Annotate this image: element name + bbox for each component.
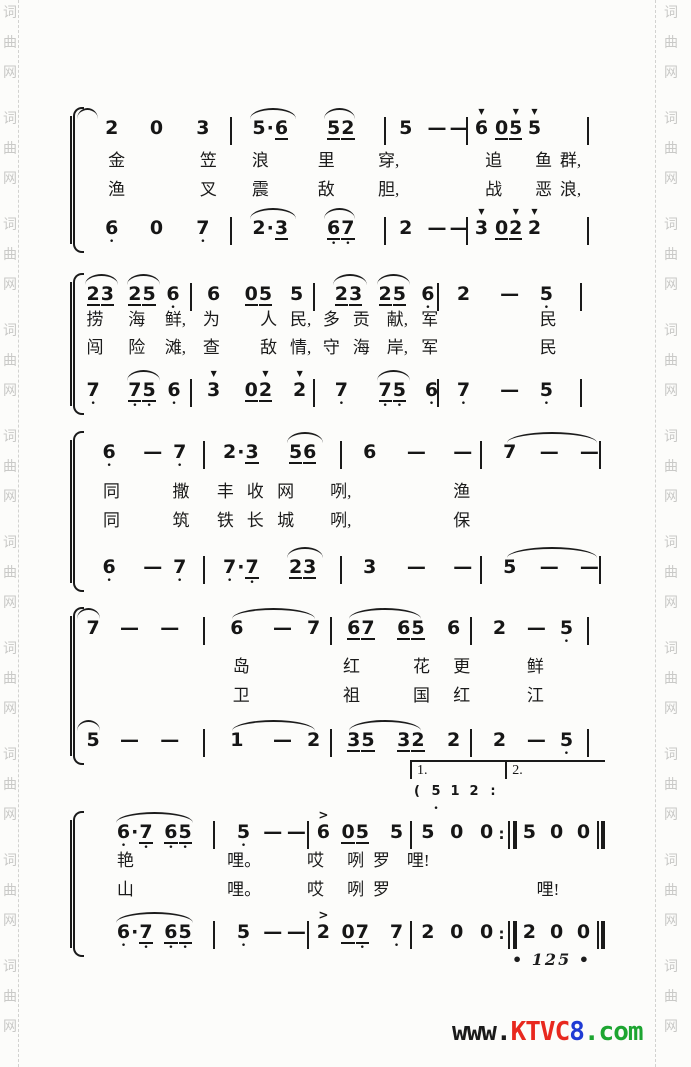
barline xyxy=(437,379,439,407)
octave-dot: • xyxy=(331,242,336,248)
note-group: ▼5 xyxy=(528,106,541,138)
note-group: — xyxy=(527,606,546,638)
music-system: 1.2.(5•12:6•·7•6•5•5•——>6055500:500艳哩。哎咧… xyxy=(85,760,600,956)
lyric-syllable: 岛 xyxy=(233,656,250,678)
note-group: >6 xyxy=(317,810,330,842)
lyrics-row: 渔叉震敌胆,战恶浪, xyxy=(85,179,600,203)
note-group: 5 xyxy=(399,106,412,138)
barline xyxy=(330,729,332,757)
lyrics-row: 艳哩。哎咧罗哩! xyxy=(85,850,600,874)
lyric-syllable: 查 xyxy=(203,337,220,359)
lyric-syllable: 丰 xyxy=(217,481,234,503)
lyric-syllable: 震 xyxy=(252,179,269,201)
watermark-char: 词 xyxy=(664,430,678,446)
dash-note: — xyxy=(263,810,282,842)
lyric-syllable: 贡 xyxy=(353,309,370,331)
note-group: 6•7• xyxy=(327,206,354,248)
cue-notes: (5•12: xyxy=(412,785,498,813)
note: 3 xyxy=(245,430,258,464)
note: 5 xyxy=(356,810,369,844)
dash-note: — xyxy=(160,718,179,750)
watermark-char: 曲 xyxy=(3,354,17,370)
barline xyxy=(599,441,601,469)
watermark-char: 网 xyxy=(664,702,678,718)
note: 5 xyxy=(87,718,100,750)
lyric-syllable: 险 xyxy=(128,337,145,359)
dash-note: — xyxy=(287,910,306,942)
note: 5 xyxy=(289,430,302,464)
barline xyxy=(587,217,589,245)
note: 2 xyxy=(411,718,424,752)
barline xyxy=(580,283,582,311)
rest-note: 0 xyxy=(495,206,508,240)
barline xyxy=(230,217,232,245)
lyric-syllable: 花 xyxy=(413,656,430,678)
octave-dot: • xyxy=(146,404,151,410)
note: ( xyxy=(412,785,422,805)
note: 7• xyxy=(341,206,354,248)
lyric-syllable: 卫 xyxy=(233,685,250,707)
note: 5 xyxy=(327,106,340,140)
lyric-syllable: 罗 xyxy=(373,879,390,901)
octave-dot: • xyxy=(249,581,254,587)
watermark-char: 网 xyxy=(664,490,678,506)
watermark-char: 网 xyxy=(3,914,17,930)
note-group: 7• xyxy=(457,368,470,408)
lyric-syllable: 笠 xyxy=(200,150,217,172)
note-group: 5• xyxy=(540,368,553,408)
lyric-syllable: 情, xyxy=(290,337,311,359)
note-group: — xyxy=(500,368,519,400)
note: 5 xyxy=(259,272,272,306)
lyric-syllable: 群, xyxy=(560,150,581,172)
rest-note: 0 xyxy=(480,810,493,842)
watermark-char: 网 xyxy=(664,808,678,824)
lyric-syllable: 江 xyxy=(527,685,544,707)
note-group: — xyxy=(120,606,139,638)
lyric-syllable: 咧 xyxy=(347,879,364,901)
lyrics-row: 同撒丰收网咧,渔 xyxy=(85,481,600,505)
watermark-column-right: 词曲网词曲网词曲网词曲网词曲网词曲网词曲网词曲网词曲网词曲网 xyxy=(664,0,682,1067)
note-group: 0 xyxy=(480,810,493,842)
note-group: 0 xyxy=(150,106,163,138)
note: 7 xyxy=(307,606,320,638)
final-barline xyxy=(597,821,606,849)
watermark-char: 曲 xyxy=(3,248,17,264)
voice-row: 6•—7•2·3566——7—— xyxy=(85,430,600,474)
note: 6• xyxy=(164,810,177,852)
accent-mark: ▼ xyxy=(478,207,484,216)
barline xyxy=(384,117,386,145)
note: 5 xyxy=(503,545,516,577)
watermark-char: 网 xyxy=(3,702,17,718)
barline xyxy=(230,117,232,145)
note-group: 5 xyxy=(421,810,434,842)
watermark-char: 网 xyxy=(664,66,678,82)
note-group: 05 xyxy=(245,272,272,306)
lyric-syllable: 鲜, xyxy=(165,309,186,331)
barline xyxy=(307,921,309,949)
lyric-syllable: 浪, xyxy=(560,179,581,201)
note-group: 32 xyxy=(397,718,424,752)
note: 5 xyxy=(399,106,412,138)
note-group: — xyxy=(540,545,559,577)
accent-mark: ▼ xyxy=(297,369,303,378)
note-group: — xyxy=(580,545,599,577)
barline xyxy=(203,441,205,469)
dot-note: · xyxy=(267,206,274,238)
barline xyxy=(410,921,412,949)
note: 6• xyxy=(327,206,340,248)
note-group: 6 xyxy=(363,430,376,462)
note: 3 xyxy=(363,545,376,577)
note-group: 0▼5 xyxy=(495,106,522,140)
note-group: 7 xyxy=(503,430,516,462)
octave-dot: • xyxy=(106,579,111,585)
note: 5• xyxy=(237,910,250,950)
watermark-char: 曲 xyxy=(3,460,17,476)
note-group: 6• xyxy=(103,545,116,585)
note: 5• xyxy=(142,368,155,410)
note: 6 xyxy=(207,272,220,304)
rest-note: 0 xyxy=(550,810,563,842)
note-group: 7• xyxy=(87,368,100,408)
lyric-syllable: 红 xyxy=(343,656,360,678)
note-group: 6•·7• xyxy=(117,910,153,952)
watermark-char: 词 xyxy=(3,218,17,234)
note: 5 xyxy=(142,272,155,306)
note: 2 xyxy=(447,718,460,750)
dash-note: — xyxy=(500,272,519,304)
note: 2 xyxy=(223,430,236,462)
lyric-syllable: 撒 xyxy=(173,481,190,503)
lyric-syllable: 穿, xyxy=(378,150,399,172)
octave-dot: • xyxy=(544,402,549,408)
accent-mark: ▼ xyxy=(513,207,519,216)
rest-note: 0 xyxy=(150,106,163,138)
watermark-char: 网 xyxy=(664,596,678,612)
lyric-syllable: 敌 xyxy=(318,179,335,201)
note: 5 xyxy=(252,106,265,138)
note-group: 7• xyxy=(196,206,209,246)
repeat-dots: : xyxy=(499,821,505,849)
barline xyxy=(213,921,215,949)
lyric-syllable: 闯 xyxy=(87,337,104,359)
barline xyxy=(470,729,472,757)
note-group: — xyxy=(500,272,519,304)
lyric-syllable: 民 xyxy=(540,309,557,331)
note: 3 xyxy=(101,272,114,306)
lyric-syllable: 哩。 xyxy=(227,850,261,872)
note: 3 xyxy=(303,545,316,579)
barline xyxy=(340,441,342,469)
barline xyxy=(599,556,601,584)
note-group: ▼3 xyxy=(207,368,220,400)
note: ▼2 xyxy=(509,206,522,240)
rest-note: 0 xyxy=(480,910,493,942)
note-group: 0 xyxy=(550,910,563,942)
lyric-syllable: 长 xyxy=(247,510,264,532)
watermark-char: 曲 xyxy=(664,354,678,370)
note-group: 0 xyxy=(450,910,463,942)
lyric-syllable: 岸, xyxy=(387,337,408,359)
barline xyxy=(330,617,332,645)
rest-note: 0 xyxy=(495,106,508,140)
barline xyxy=(190,379,192,407)
watermark-char: 曲 xyxy=(664,672,678,688)
dash-note: — xyxy=(427,106,446,138)
note: 1 xyxy=(450,785,460,805)
lyric-syllable: 金 xyxy=(108,150,125,172)
note: ▼5 xyxy=(528,106,541,138)
note-group: — xyxy=(273,718,292,750)
watermark-char: 网 xyxy=(664,914,678,930)
lyric-syllable: 网 xyxy=(277,481,294,503)
note: ▼6 xyxy=(475,106,488,138)
octave-dot: • xyxy=(200,240,205,246)
barline xyxy=(470,617,472,645)
octave-dot: • xyxy=(121,944,126,950)
lyric-syllable: 国 xyxy=(413,685,430,707)
note-group: 2 xyxy=(493,718,506,750)
dash-note: — xyxy=(540,545,559,577)
watermark-char: 词 xyxy=(664,218,678,234)
dot-note: · xyxy=(237,430,244,462)
rest-note: 0 xyxy=(150,206,163,238)
repeat-dots: : xyxy=(499,921,505,949)
note-group: 25 xyxy=(128,272,155,306)
note: 7• xyxy=(128,368,141,410)
watermark-char: 网 xyxy=(664,1020,678,1036)
note-group: — xyxy=(540,430,559,462)
watermark-char: 曲 xyxy=(3,672,17,688)
note-group: 2 xyxy=(307,718,320,750)
note-group: 7• xyxy=(173,545,186,585)
note-group: 2 xyxy=(523,910,536,942)
lyric-syllable: 追 xyxy=(485,150,502,172)
accent-mark: ▼ xyxy=(211,369,217,378)
note-group: 5• xyxy=(540,272,553,312)
note-group: 0 xyxy=(480,910,493,942)
octave-dot: • xyxy=(429,402,434,408)
watermark-char: 曲 xyxy=(3,990,17,1006)
octave-dot: • xyxy=(394,944,399,950)
watermark-char: 网 xyxy=(664,172,678,188)
note: 7• xyxy=(335,368,348,408)
barline xyxy=(340,556,342,584)
site-watermark-ktvc: KTVC xyxy=(511,1017,570,1047)
note: 7• xyxy=(139,910,152,952)
lyrics-row: 卫祖国红江 xyxy=(85,685,600,709)
barline xyxy=(480,556,482,584)
note: 7• xyxy=(196,206,209,246)
note: 5• xyxy=(560,606,573,646)
watermark-char: 词 xyxy=(3,6,17,22)
note-group: >2 xyxy=(317,910,330,942)
note: 3 xyxy=(397,718,410,752)
accent-mark: ▼ xyxy=(262,369,268,378)
dash-note: — xyxy=(273,606,292,638)
lyrics-row: 岛红花更鲜 xyxy=(85,656,600,680)
accent-mark: ▼ xyxy=(513,107,519,116)
lyric-syllable: 保 xyxy=(453,510,470,532)
note-group: — xyxy=(580,430,599,462)
note-group: 2 xyxy=(493,606,506,638)
watermark-char: 网 xyxy=(3,808,17,824)
note-group: — xyxy=(427,106,446,138)
lyric-syllable: 祖 xyxy=(343,685,360,707)
octave-dot: • xyxy=(397,404,402,410)
note: 2 xyxy=(421,910,434,942)
dash-note: — xyxy=(580,430,599,462)
music-system: 6•—7•2·3566——7——同撒丰收网咧,渔同筑铁长城咧,保6•—7•7•·… xyxy=(85,430,600,590)
dash-note: — xyxy=(143,545,162,577)
note-group: 2·3 xyxy=(252,206,288,240)
lyric-syllable: 鲜 xyxy=(527,656,544,678)
note-group: 6•·7• xyxy=(117,810,153,852)
rest-note: 0 xyxy=(550,910,563,942)
accent-mark: > xyxy=(318,908,328,922)
barline xyxy=(410,821,412,849)
barline xyxy=(190,283,192,311)
note-group: 6•5• xyxy=(164,910,191,952)
octave-dot: • xyxy=(564,752,569,758)
note-group: 2·3 xyxy=(223,430,259,464)
rest-note: 0 xyxy=(245,368,258,402)
note-group: 7 xyxy=(87,606,100,638)
octave-dot: • xyxy=(177,464,182,470)
note: ▼2 xyxy=(293,368,306,400)
page-number: • 125 • xyxy=(512,950,591,969)
note-group: — xyxy=(453,430,472,462)
note-group: 23 xyxy=(335,272,362,306)
octave-dot: • xyxy=(345,242,350,248)
watermark-char: 网 xyxy=(3,596,17,612)
rest-note: 0 xyxy=(577,810,590,842)
note-group: 2 xyxy=(457,272,470,304)
note-group: 5• xyxy=(560,606,573,646)
note: 6• xyxy=(164,910,177,952)
voice-row: 6•—7•7•·7•233——5—— xyxy=(85,545,600,589)
note-group: 23 xyxy=(87,272,114,306)
note: 2 xyxy=(252,206,265,238)
repeat-barline: : xyxy=(499,821,517,849)
watermark-char: 曲 xyxy=(3,566,17,582)
note: 6• xyxy=(105,206,118,246)
watermark-char: 网 xyxy=(3,278,17,294)
note: 2 xyxy=(87,272,100,306)
octave-dot: • xyxy=(461,402,466,408)
note: 6 xyxy=(447,606,460,638)
note-group: 6• xyxy=(167,368,180,408)
note-group: ▼2 xyxy=(528,206,541,238)
dash-note: — xyxy=(287,810,306,842)
dot-note: · xyxy=(131,810,138,842)
note-group: 3 xyxy=(363,545,376,577)
note-group: ▼3 xyxy=(475,206,488,238)
barline xyxy=(313,283,315,311)
watermark-char: 词 xyxy=(3,854,17,870)
barline xyxy=(466,117,468,145)
watermark-char: 词 xyxy=(664,536,678,552)
barline xyxy=(587,117,589,145)
lyric-syllable: 哩! xyxy=(407,850,430,872)
note-group: — xyxy=(263,910,282,942)
system-brace xyxy=(70,440,79,583)
site-watermark-www: www. xyxy=(452,1017,511,1047)
dot-note: · xyxy=(131,910,138,942)
system-brace xyxy=(70,116,79,244)
note: 2 xyxy=(341,106,354,140)
octave-dot: • xyxy=(241,944,246,950)
note: 5• xyxy=(393,368,406,410)
note: 6 xyxy=(363,430,376,462)
rest-note: 0 xyxy=(450,910,463,942)
note: 7• xyxy=(87,368,100,408)
octave-dot: • xyxy=(132,404,137,410)
watermark-column-left: 词曲网词曲网词曲网词曲网词曲网词曲网词曲网词曲网词曲网词曲网 xyxy=(3,0,21,1067)
lyric-syllable: 军 xyxy=(421,337,438,359)
score: 2035·6525——▼60▼5▼5金笠浪里穿,追鱼群,渔叉震敌胆,战恶浪,6•… xyxy=(85,0,600,1010)
dash-note: — xyxy=(500,368,519,400)
note-group: 5 xyxy=(390,810,403,842)
lyric-syllable: 胆, xyxy=(378,179,399,201)
lyric-syllable: 艳 xyxy=(117,850,134,872)
lyric-syllable: 海 xyxy=(353,337,370,359)
note-group: — xyxy=(143,430,162,462)
note: 5 xyxy=(411,606,424,640)
accent-mark: ▼ xyxy=(531,107,537,116)
note-group: 5• xyxy=(237,910,250,950)
watermark-char: 网 xyxy=(3,384,17,400)
lyric-syllable: 哩。 xyxy=(227,879,261,901)
watermark-char: 词 xyxy=(3,642,17,658)
note: 7• xyxy=(173,545,186,585)
dash-note: — xyxy=(120,718,139,750)
lyrics-row: 山哩。哎咧罗哩! xyxy=(85,879,600,903)
watermark-char: 曲 xyxy=(3,36,17,52)
octave-dot: • xyxy=(564,640,569,646)
note: 5• xyxy=(179,910,192,952)
note-group: 7•5• xyxy=(379,368,406,410)
note-group: — xyxy=(287,910,306,942)
lyrics-row: 金笠浪里穿,追鱼群, xyxy=(85,150,600,174)
watermark-char: 曲 xyxy=(3,142,17,158)
lyric-syllable: 渔 xyxy=(453,481,470,503)
note-group: 7•·7• xyxy=(223,545,259,587)
note-group: 0 xyxy=(450,810,463,842)
note: 6• xyxy=(167,368,180,408)
barline xyxy=(213,821,215,849)
note: 6• xyxy=(166,272,179,312)
note-group: 65 xyxy=(397,606,424,640)
note: 5 xyxy=(290,272,303,304)
lyric-syllable: 哩! xyxy=(537,879,560,901)
rest-note: 0 xyxy=(245,272,258,306)
rest-note: 0 xyxy=(577,910,590,942)
music-system: 2035·6525——▼60▼5▼5金笠浪里穿,追鱼群,渔叉震敌胆,战恶浪,6•… xyxy=(85,106,600,256)
dash-note: — xyxy=(407,545,426,577)
note: 7 xyxy=(503,430,516,462)
watermark-char: 词 xyxy=(3,748,17,764)
note-group: 5• xyxy=(560,718,573,758)
dash-note: — xyxy=(527,606,546,638)
note: 2 xyxy=(105,106,118,138)
system-brace xyxy=(70,282,79,406)
note-group: 7 xyxy=(307,606,320,638)
note-group: — xyxy=(527,718,546,750)
dash-note: — xyxy=(407,430,426,462)
